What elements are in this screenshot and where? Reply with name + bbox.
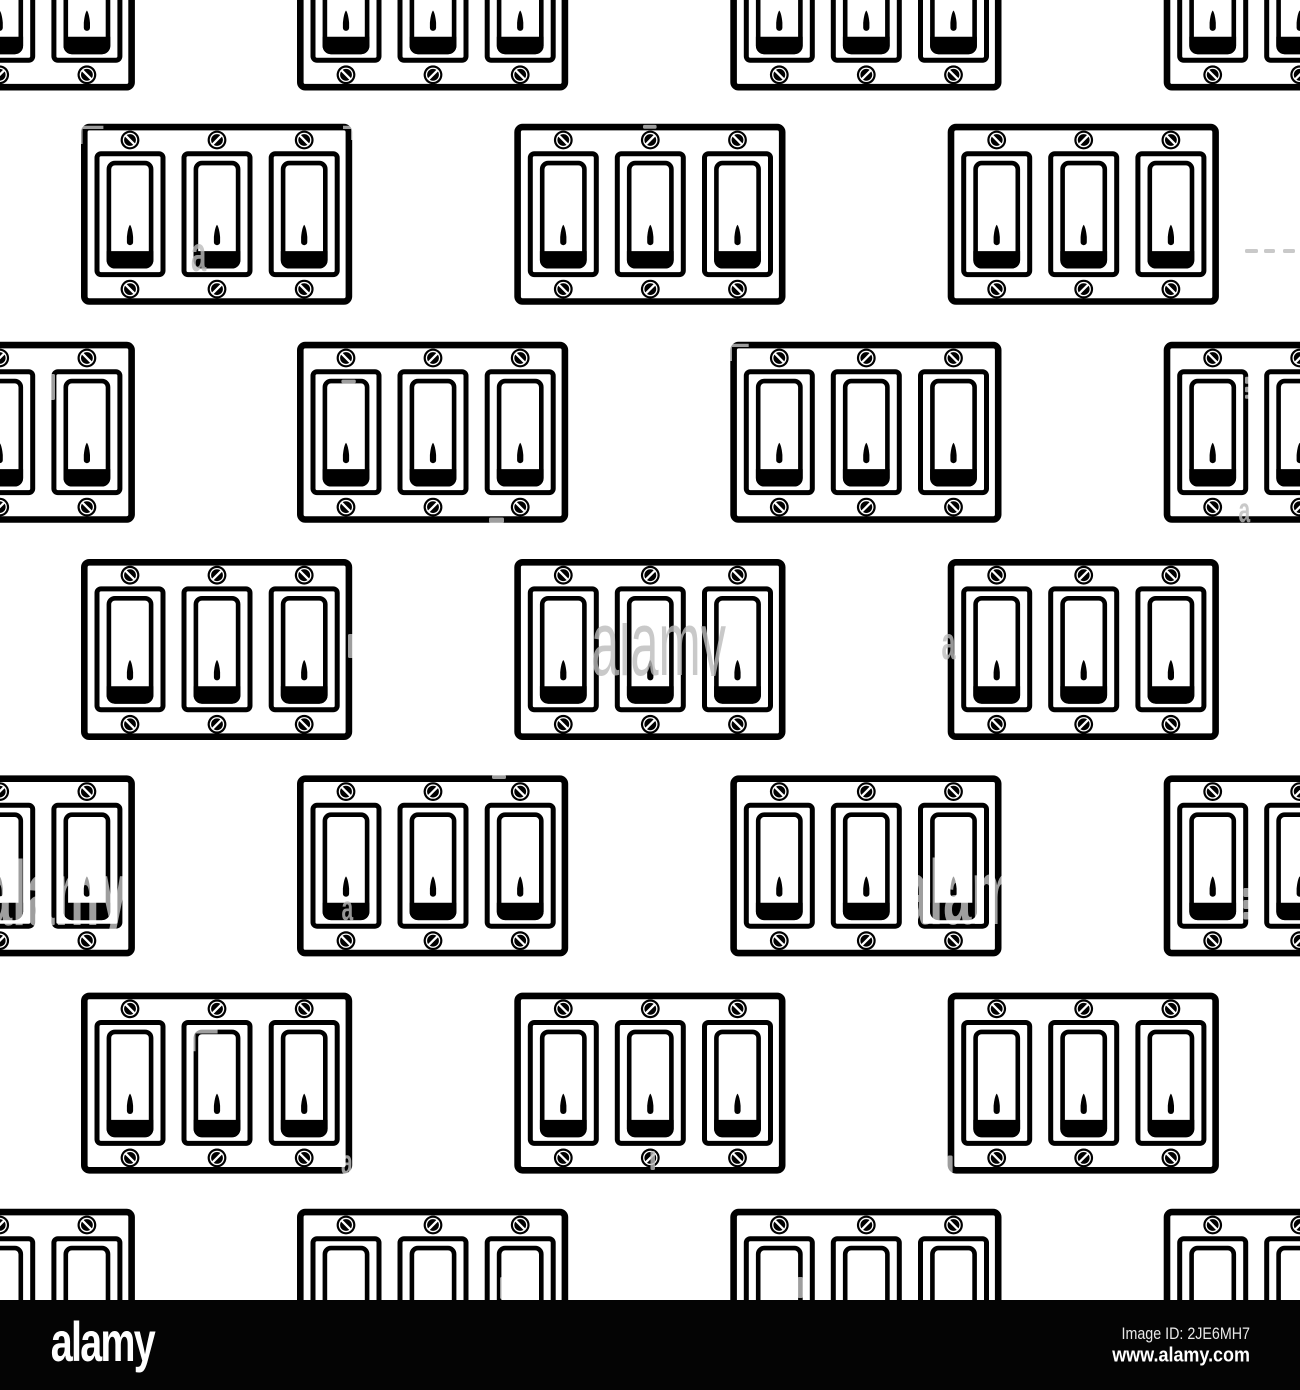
svg-text:www.alamy.com: www.alamy.com xyxy=(1111,1345,1250,1367)
svg-text:a: a xyxy=(341,1144,353,1183)
svg-text:alamy: alamy xyxy=(51,1311,156,1373)
svg-text:alamy: alamy xyxy=(0,842,127,945)
svg-text:Image ID: 2JE6MH7: Image ID: 2JE6MH7 xyxy=(1122,1325,1250,1343)
svg-text:a: a xyxy=(942,617,956,669)
svg-text:a: a xyxy=(342,890,354,929)
svg-text:alamy: alamy xyxy=(901,841,1044,944)
svg-text:a: a xyxy=(1239,492,1251,531)
svg-text:a: a xyxy=(191,225,207,282)
